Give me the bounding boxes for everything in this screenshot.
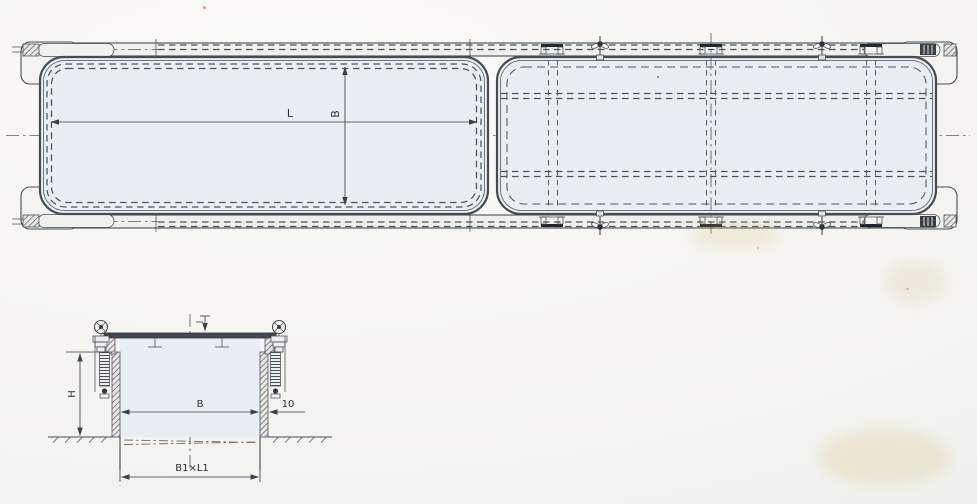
width-dim-label: B [329,110,342,118]
height-dim-label: H [67,390,78,398]
coaming-wall-right [260,352,268,437]
opening-size-dim-label: B1×L1 [175,463,209,474]
coaming-wall-left [112,352,120,437]
clear-width-dim-label: B [197,399,204,410]
dimension-opening-size: B1×L1 [120,449,260,482]
plan-view: L B [6,33,970,238]
right-cover-panel [497,33,936,238]
wingnut-clamp-right [271,321,288,399]
side-rail-top [30,39,940,57]
coaming-interior [120,338,260,437]
section-view: H B 10 B1×L1 [48,314,332,482]
scanned-drawing-page: { "drawing": { "plan_view": { "length_la… [0,0,977,504]
dimension-wall-thickness: 10 [270,399,306,412]
technical-drawing: L B [0,0,977,504]
plate-thickness-callout [196,316,210,331]
side-rail-bottom [30,214,940,232]
length-dim-label: L [287,107,294,120]
wall-thickness-dim-label: 10 [282,399,295,410]
wingnut-clamp-left [93,321,110,399]
left-cover-panel [40,57,488,214]
